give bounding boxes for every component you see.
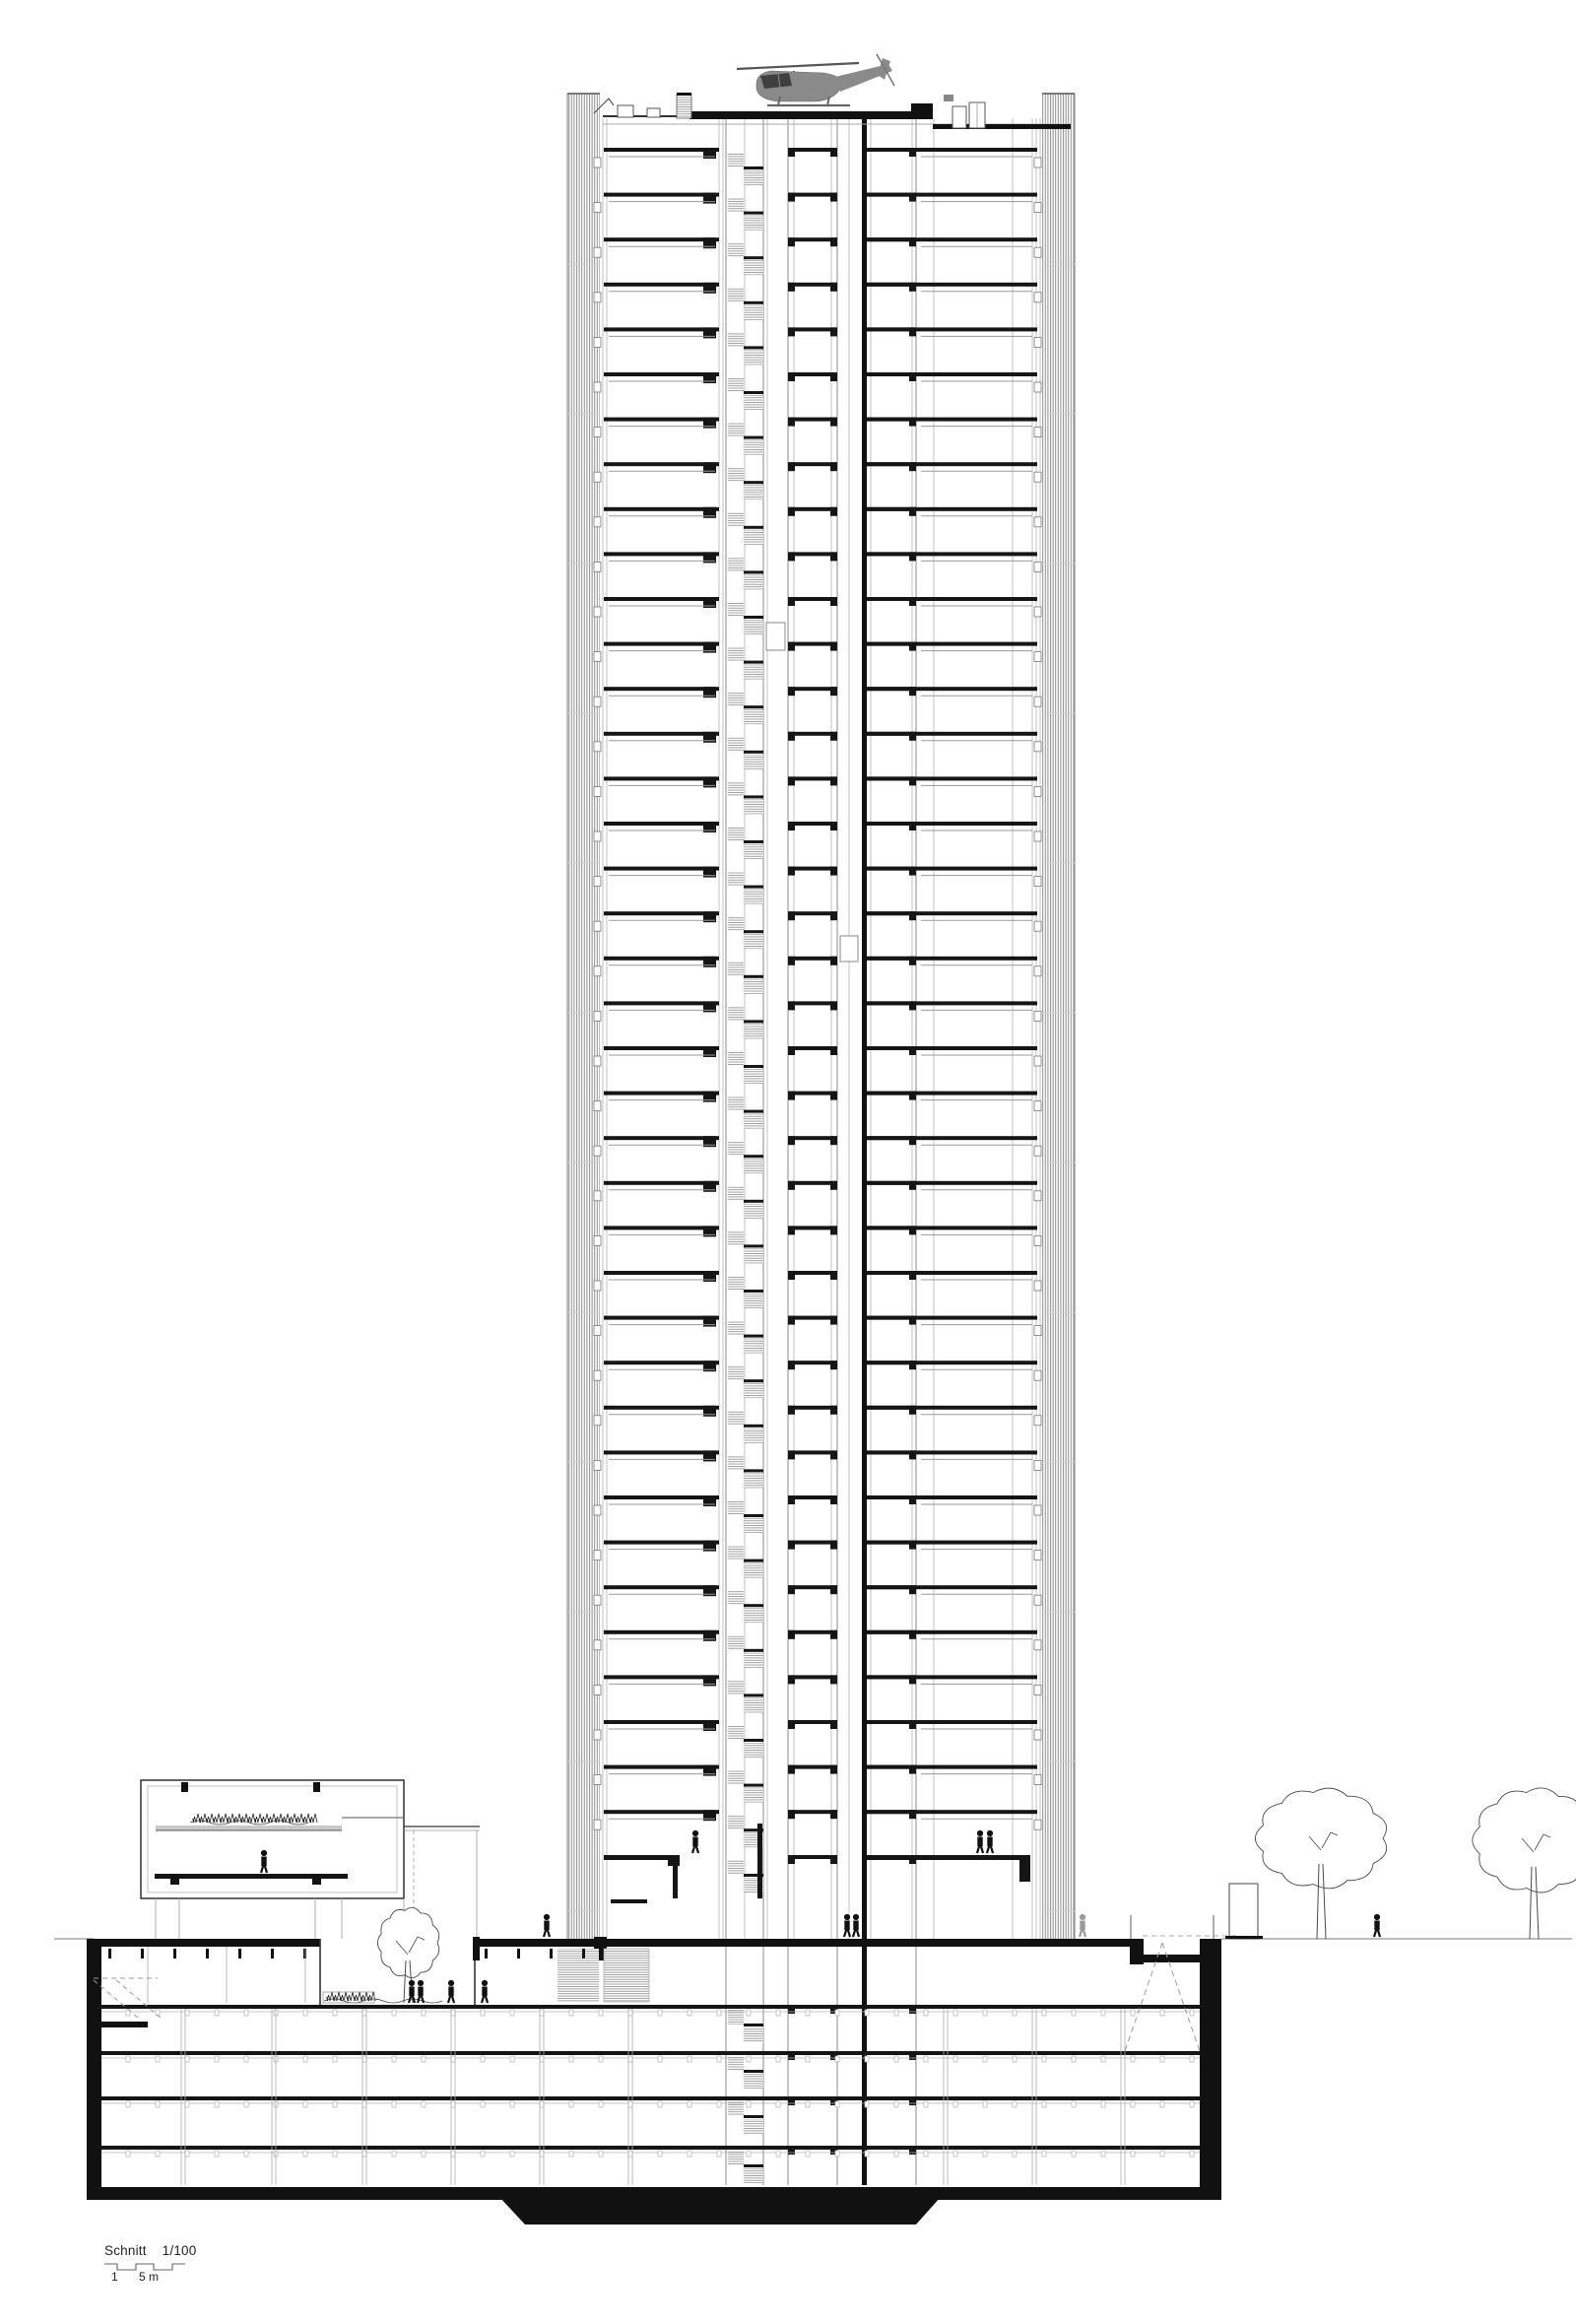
scale-bar-label-start: 1 [111,2270,118,2284]
person-pavilion [261,1850,267,1873]
person-lobby-b [853,1914,859,1937]
helipad-slab [689,111,933,119]
basement-group [87,1939,1221,2224]
roof-group [594,93,1071,129]
tree-right-1 [1255,1788,1386,1939]
helicopter-group [737,54,894,105]
trees-group [377,1788,1576,2003]
tower-floors-group [594,148,1041,2183]
section-drawing [0,0,1576,2324]
tree-courtyard [377,1907,438,2003]
person-mezzanine-right-a [977,1830,983,1853]
person-terrace-right [1080,1914,1085,1937]
tree-right-2 [1473,1788,1576,1939]
person-mezzanine-left [692,1830,698,1853]
core-wall [862,114,867,2185]
person-courtyard-c [448,1980,454,2003]
person-ground-right [1374,1914,1380,1937]
drawing-title: Schnitt [104,2243,147,2258]
person-plaza-left [544,1914,550,1937]
site-group [54,1936,1572,1939]
architectural-section-sheet: Schnitt1/100 1 5 m [0,0,1576,2324]
tower-facade-group [567,94,1075,1939]
basement-wall-right [1200,1939,1221,2200]
person-courtyard-d [482,1980,488,2003]
facade-right-louvers [1042,94,1075,1939]
person-mezzanine-right-b [987,1830,993,1853]
pavilion-group [141,1780,480,1939]
person-courtyard-b [418,1980,424,2003]
person-lobby-a [844,1914,850,1937]
tower-verticals-group [603,114,1040,2185]
scale-bar-label-end: 5 m [139,2270,159,2284]
title-block: Schnitt1/100 [104,2243,196,2258]
person-courtyard-a [409,1980,415,2003]
drawing-scale: 1/100 [163,2243,197,2258]
